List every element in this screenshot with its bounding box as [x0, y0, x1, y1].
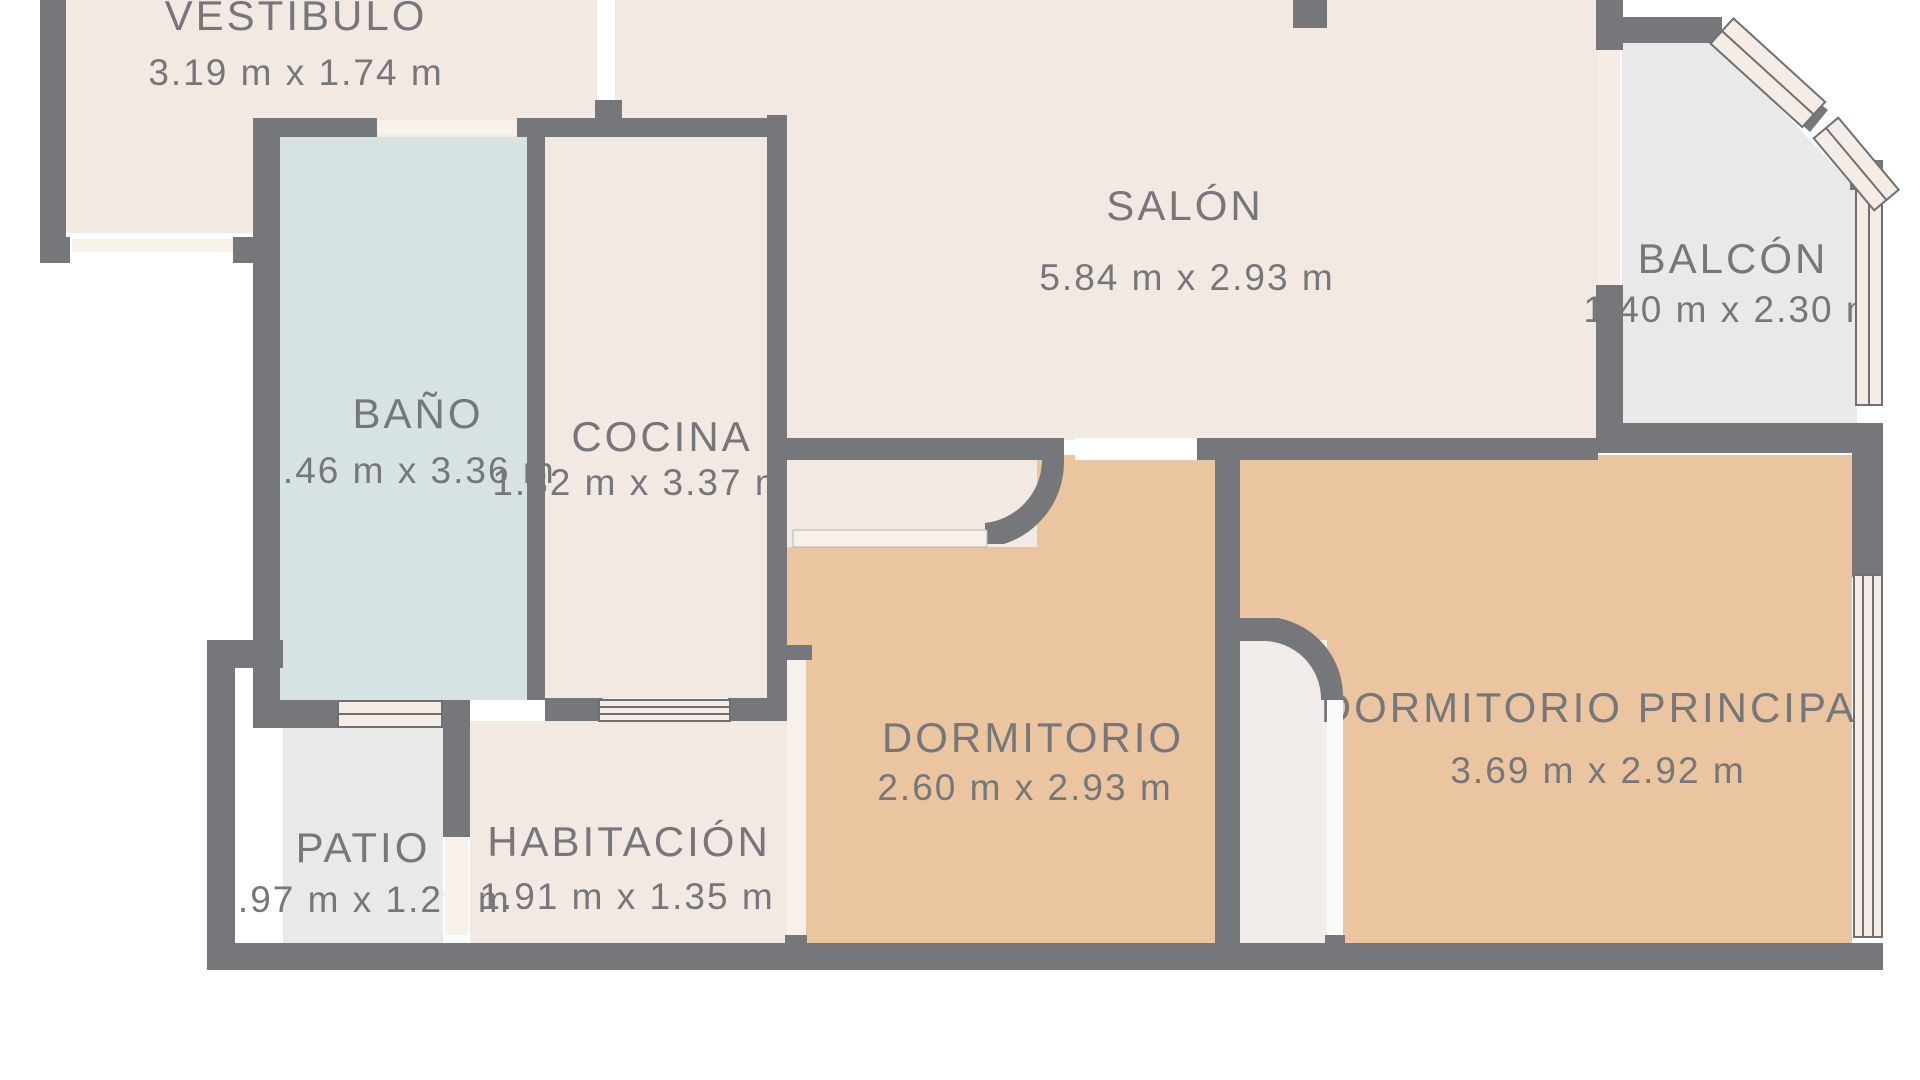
balcon-diagonal-window-1-icon [1711, 18, 1826, 127]
floorplan-walls-layer [0, 0, 1920, 1080]
principal-window-icon [1854, 575, 1882, 937]
cocina-window-icon [599, 700, 730, 721]
windows [338, 18, 1899, 937]
door-openings [72, 0, 1620, 935]
floorplan-canvas: VESTÍBULO 3.19 m x 1.74 m BAÑO 1.46 m x … [0, 0, 1920, 1080]
